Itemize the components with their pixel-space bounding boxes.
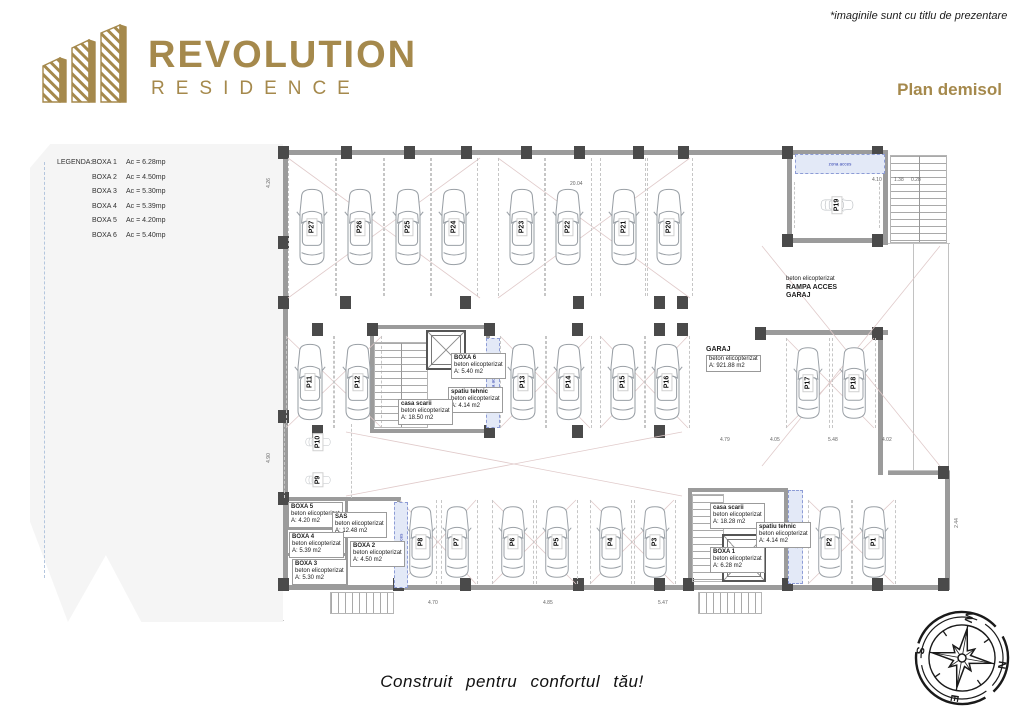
wall bbox=[878, 330, 883, 475]
dimension-text: 4.79 bbox=[720, 437, 730, 443]
structural-column bbox=[938, 466, 949, 479]
wall bbox=[370, 429, 490, 433]
compass-w: W bbox=[961, 611, 975, 624]
dimension-text: 20.04 bbox=[570, 181, 583, 187]
parking-stall-P5: P5 bbox=[536, 500, 578, 584]
room-area: A: 18.28 m2 bbox=[713, 519, 745, 525]
room-name: casa scarii bbox=[713, 505, 744, 511]
parking-label: P4 bbox=[605, 535, 616, 550]
parking-stall-P18: P18 bbox=[832, 338, 876, 428]
stairs bbox=[698, 592, 762, 614]
dimension-text: 5.47 bbox=[658, 600, 668, 606]
parking-stall-P20: P20 bbox=[645, 158, 693, 296]
parking-label: P8 bbox=[415, 535, 426, 550]
room-label-spatiu-tehnic: spatiu tehnicbeton elicopterizatA: 4.14 … bbox=[448, 387, 503, 413]
compass-n: N bbox=[995, 660, 1008, 670]
dimension-text: 4.05 bbox=[770, 437, 780, 443]
parking-stall-P4: P4 bbox=[590, 500, 632, 584]
structural-column bbox=[755, 327, 766, 340]
room-area: A: 4.20 m2 bbox=[291, 518, 320, 524]
parking-stall-P15: P15 bbox=[600, 336, 646, 428]
room-name: spatiu tehnic bbox=[759, 524, 796, 530]
room-label-boxa-1: BOXA 1beton elicopterizatA: 6.28 m2 bbox=[710, 547, 765, 573]
parking-label: P27 bbox=[306, 218, 317, 236]
parking-label: P13 bbox=[517, 373, 528, 391]
room-area: A: 4.14 m2 bbox=[759, 538, 788, 544]
parking-label: P6 bbox=[507, 535, 518, 550]
parking-label: P25 bbox=[402, 218, 413, 236]
structural-column bbox=[654, 296, 665, 309]
stairs bbox=[890, 155, 947, 243]
room-area: A: 6.28 m2 bbox=[713, 563, 742, 569]
parking-stall-P25: P25 bbox=[384, 158, 432, 296]
room-name: BOXA 4 bbox=[292, 534, 314, 540]
parking-label: P9 bbox=[312, 473, 323, 488]
parking-label: P11 bbox=[304, 373, 315, 391]
stairs bbox=[330, 592, 394, 614]
parking-label: P7 bbox=[451, 535, 462, 550]
parking-label: P17 bbox=[802, 374, 813, 392]
room-name: SAS bbox=[335, 514, 347, 520]
access-zone: zona acces bbox=[486, 338, 500, 428]
wall bbox=[283, 585, 950, 590]
access-zone: zona acces bbox=[795, 154, 885, 174]
parking-stall-P22: P22 bbox=[544, 158, 592, 296]
parking-stall-P16: P16 bbox=[644, 336, 690, 428]
parking-stall-P27: P27 bbox=[288, 158, 336, 296]
room-area: A: 5.39 m2 bbox=[292, 548, 321, 554]
dimension-text: 0.28 bbox=[911, 177, 921, 183]
room-label-boxa-3: BOXA 3beton elicopterizatA: 5.30 m2 bbox=[292, 559, 347, 585]
room-name: BOXA 3 bbox=[295, 561, 317, 567]
dimension-text: 4.90 bbox=[266, 453, 272, 463]
structural-column bbox=[677, 323, 688, 336]
room-material: beton elicopterizat bbox=[713, 556, 762, 562]
parking-label: P22 bbox=[562, 218, 573, 236]
parking-label: P18 bbox=[848, 374, 859, 392]
room-material: beton elicopterizat bbox=[401, 408, 450, 414]
parking-stall-P17: P17 bbox=[786, 338, 830, 428]
ramp-edge-line bbox=[913, 243, 914, 471]
room-material: beton elicopterizat bbox=[713, 512, 762, 518]
parking-label: P26 bbox=[354, 218, 365, 236]
floor-plan: P27P26P25P24P23P22P21P20P11P12P13P14P15P… bbox=[0, 0, 1024, 724]
room-area: A: 4.50 m2 bbox=[353, 557, 382, 563]
parking-label: P15 bbox=[617, 373, 628, 391]
parking-stall-P13: P13 bbox=[500, 336, 546, 428]
room-area: A: 18.50 m2 bbox=[401, 415, 433, 421]
dimension-text: 4.85 bbox=[543, 600, 553, 606]
parking-label: P12 bbox=[352, 373, 363, 391]
room-material: beton elicopterizat bbox=[451, 396, 500, 402]
parking-stall-P21: P21 bbox=[600, 158, 648, 296]
parking-label: P21 bbox=[618, 218, 629, 236]
room-area: A: 4.14 m2 bbox=[451, 403, 480, 409]
parking-stall-P3: P3 bbox=[634, 500, 676, 584]
dimension-text: 5.48 bbox=[828, 437, 838, 443]
parking-label: P23 bbox=[516, 218, 527, 236]
wall bbox=[760, 330, 888, 335]
parking-label: P19 bbox=[831, 196, 842, 214]
garaj-label: GARAJbeton elicopterizatA: 921.88 m2 bbox=[706, 346, 761, 372]
room-name: spatiu tehnic bbox=[451, 389, 488, 395]
dimension-text: 4.70 bbox=[428, 600, 438, 606]
parking-label: P2 bbox=[824, 535, 835, 550]
parking-stall-P26: P26 bbox=[336, 158, 384, 296]
parking-stall-P6: P6 bbox=[492, 500, 534, 584]
parking-stall-P1: P1 bbox=[852, 500, 896, 584]
garaj-detail: beton elicopterizatA: 921.88 m2 bbox=[706, 355, 761, 372]
garaj-name: GARAJ bbox=[706, 346, 731, 353]
ramp-line2: RAMPA ACCES bbox=[786, 284, 837, 291]
structural-column bbox=[572, 323, 583, 336]
ramp-line3: GARAJ bbox=[786, 292, 811, 299]
room-material: beton elicopterizat bbox=[335, 521, 384, 527]
room-label-spatiu-tehnic: spatiu tehnicbeton elicopterizatA: 4.14 … bbox=[756, 522, 811, 548]
room-label-casa-scarii: casa scariibeton elicopterizatA: 18.50 m… bbox=[398, 399, 453, 425]
room-name: BOXA 5 bbox=[291, 504, 313, 510]
parking-stall-P19: P19 bbox=[794, 182, 880, 228]
structural-column bbox=[278, 578, 289, 591]
parking-stall-P23: P23 bbox=[498, 158, 546, 296]
parking-stall-P24: P24 bbox=[430, 158, 478, 296]
room-area: A: 5.40 m2 bbox=[454, 369, 483, 375]
stairs-divider bbox=[919, 156, 920, 242]
room-material: beton elicopterizat bbox=[454, 362, 503, 368]
structural-column bbox=[278, 296, 289, 309]
parking-label: P20 bbox=[663, 218, 674, 236]
parking-stall-P14: P14 bbox=[546, 336, 592, 428]
ramp-edge-line bbox=[948, 243, 949, 471]
compass-rose: N E S W bbox=[904, 600, 1020, 716]
wall bbox=[688, 488, 788, 492]
structural-column bbox=[677, 296, 688, 309]
wall bbox=[945, 470, 950, 590]
dimension-text: 2.44 bbox=[954, 518, 960, 528]
dimension-text: 4.26 bbox=[266, 178, 272, 188]
structural-column bbox=[573, 296, 584, 309]
dimension-text: 1.38 bbox=[894, 177, 904, 183]
parking-label: P1 bbox=[868, 535, 879, 550]
parking-stall-P9: P9 bbox=[284, 462, 352, 498]
structural-column bbox=[340, 296, 351, 309]
room-name: BOXA 1 bbox=[713, 549, 735, 555]
plan-demisol-page: REVOLUTION RESIDENCE *imaginile sunt cu … bbox=[0, 0, 1024, 724]
parking-stall-P2: P2 bbox=[808, 500, 852, 584]
room-name: casa scarii bbox=[401, 401, 432, 407]
parking-label: P16 bbox=[661, 373, 672, 391]
room-name: BOXA 6 bbox=[454, 355, 476, 361]
parking-label: P5 bbox=[551, 535, 562, 550]
ramp-label: beton elicopterizatRAMPA ACCESGARAJ bbox=[786, 276, 837, 301]
parking-label: P10 bbox=[312, 433, 323, 451]
room-label-boxa-6: BOXA 6beton elicopterizatA: 5.40 m2 bbox=[451, 353, 506, 379]
room-area: A: 5.30 m2 bbox=[295, 575, 324, 581]
structural-column bbox=[938, 578, 949, 591]
room-name: BOXA 2 bbox=[353, 543, 375, 549]
room-label-boxa-2: BOXA 2beton elicopterizatA: 4.50 m2 bbox=[350, 541, 405, 567]
ramp-edge-line bbox=[888, 243, 950, 244]
parking-label: P24 bbox=[448, 218, 459, 236]
room-label-boxa-4: BOXA 4beton elicopterizatA: 5.39 m2 bbox=[289, 532, 344, 558]
wall bbox=[370, 325, 490, 329]
ramp-line1: beton elicopterizat bbox=[786, 276, 835, 282]
dimension-text: 4.02 bbox=[882, 437, 892, 443]
structural-column bbox=[872, 234, 883, 247]
tagline: Construit pentru confortul tău! bbox=[0, 672, 1024, 692]
structural-column bbox=[367, 323, 378, 336]
room-material: beton elicopterizat bbox=[292, 541, 341, 547]
room-material: beton elicopterizat bbox=[295, 568, 344, 574]
structural-column bbox=[312, 323, 323, 336]
room-material: beton elicopterizat bbox=[759, 531, 808, 537]
room-material: beton elicopterizat bbox=[353, 550, 402, 556]
structural-column bbox=[654, 323, 665, 336]
structural-column bbox=[782, 234, 793, 247]
dimension-text: 4.10 bbox=[872, 177, 882, 183]
parking-label: P14 bbox=[563, 373, 574, 391]
access-zone-label: zona acces bbox=[829, 162, 852, 167]
structural-column bbox=[782, 146, 793, 159]
ramp-edge-line bbox=[283, 620, 284, 621]
wall bbox=[787, 150, 792, 243]
structural-column bbox=[484, 323, 495, 336]
parking-stall-P7: P7 bbox=[436, 500, 478, 584]
parking-label: P3 bbox=[649, 535, 660, 550]
structural-column bbox=[460, 296, 471, 309]
